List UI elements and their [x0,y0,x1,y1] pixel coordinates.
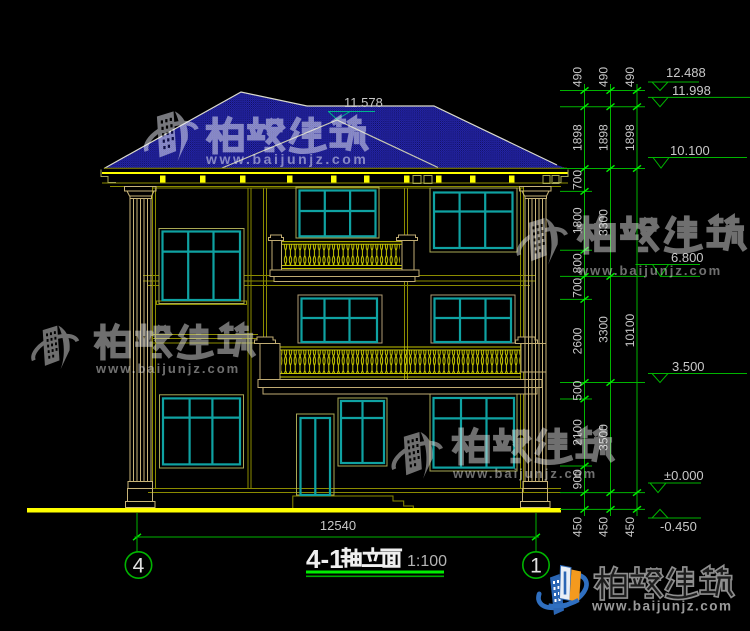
svg-text:490: 490 [623,67,637,87]
svg-text:450: 450 [571,517,585,537]
svg-text:4: 4 [133,555,145,578]
svg-text:1898: 1898 [571,124,585,151]
svg-text:www.baijunjz.com: www.baijunjz.com [591,599,733,614]
svg-text:12540: 12540 [320,518,356,533]
svg-text:490: 490 [571,67,585,87]
svg-text:1898: 1898 [597,124,611,151]
svg-text:12.488: 12.488 [666,65,706,80]
svg-text:1:100: 1:100 [407,553,447,570]
svg-text:1898: 1898 [623,124,637,151]
svg-text:-0.450: -0.450 [660,519,697,534]
svg-text:4-1: 4-1 [306,544,344,574]
svg-text:3300: 3300 [597,316,611,343]
svg-text:450: 450 [597,517,611,537]
svg-text:±0.000: ±0.000 [664,468,704,483]
svg-text:www.baijunjz.com: www.baijunjz.com [452,466,597,481]
svg-text:www.baijunjz.com: www.baijunjz.com [577,263,722,278]
svg-text:700: 700 [571,170,585,190]
svg-text:1: 1 [530,555,542,578]
svg-text:490: 490 [597,67,611,87]
svg-text:1800: 1800 [571,207,585,234]
svg-text:450: 450 [623,517,637,537]
svg-text:www.baijunjz.com: www.baijunjz.com [205,151,368,167]
svg-text:3.500: 3.500 [672,359,705,374]
svg-text:11.578: 11.578 [344,95,383,110]
svg-text:700: 700 [571,278,585,298]
svg-text:10.100: 10.100 [670,143,710,158]
svg-text:500: 500 [571,380,585,400]
svg-text:11.998: 11.998 [672,83,711,98]
svg-text:www.baijunjz.com: www.baijunjz.com [95,361,240,376]
svg-text:10100: 10100 [623,313,637,347]
svg-text:2600: 2600 [571,327,585,354]
